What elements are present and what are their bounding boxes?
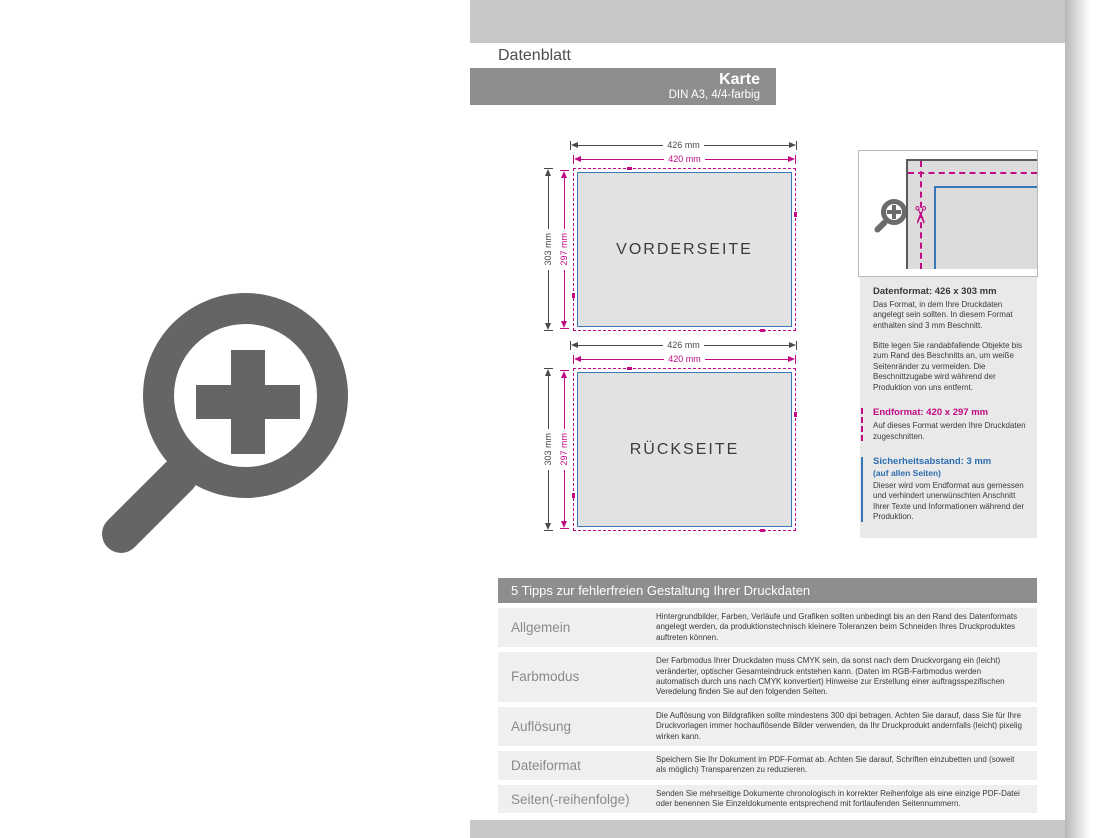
row-label: Dateiformat: [498, 758, 656, 773]
dim-line: [704, 145, 789, 146]
dim-arrow: [545, 523, 551, 530]
tips-header-bar: 5 Tipps zur fehlerfreien Gestaltung Ihre…: [498, 578, 1037, 603]
dim-arrow: [561, 521, 567, 528]
tips-table: Allgemein Hintergrundbilder, Farben, Ver…: [498, 608, 1037, 813]
row-text: Die Auflösung von Bildgrafiken sollte mi…: [656, 707, 1037, 746]
corner-illustration: ✂: [906, 159, 1037, 269]
row-text: Senden Sie mehrseitige Dokumente chronol…: [656, 785, 1037, 814]
product-header-bar: Karte DIN A3, 4/4-farbig: [470, 68, 776, 105]
dim-tick: [560, 328, 569, 329]
format-info-panel: Datenformat: 426 x 303 mm Das Format, in…: [860, 277, 1037, 538]
datenformat-text-1: Das Format, in dem Ihre Druckdaten angel…: [873, 300, 1029, 332]
crop-mark: [794, 212, 797, 217]
crop-mark: [760, 329, 765, 332]
crop-mark: [627, 167, 632, 170]
dim-line: [548, 376, 549, 429]
page-top-band: [470, 0, 1065, 43]
row-text: Hintergrundbilder, Farben, Verläufe und …: [656, 608, 1037, 647]
datenformat-section: Datenformat: 426 x 303 mm Das Format, in…: [873, 286, 1029, 393]
row-label: Allgemein: [498, 620, 656, 635]
back-label: RÜCKSEITE: [630, 441, 740, 459]
safety-margin-corner: [934, 186, 1037, 269]
datenformat-title: Datenformat: 426 x 303 mm: [873, 286, 1029, 298]
crop-mark: [794, 412, 797, 417]
back-height-bleed-label: 303 mm: [544, 429, 553, 470]
dim-line: [548, 270, 549, 323]
dim-line: [705, 159, 788, 160]
dim-tick: [560, 528, 569, 529]
dim-arrow: [571, 142, 578, 148]
sicherheitsabstand-title: Sicherheitsabstand: 3 mm: [873, 456, 1029, 468]
scissors-icon: ✂: [907, 205, 931, 225]
plus-vertical-bar: [231, 350, 265, 454]
page-bottom-band: [470, 820, 1065, 838]
front-height-final-label: 297 mm: [560, 229, 569, 270]
dim-tick: [795, 355, 796, 364]
sicherheitsabstand-subtitle: (auf allen Seiten): [873, 468, 1029, 479]
magnifier-handle: [873, 218, 889, 234]
back-width-final-label: 420 mm: [664, 355, 705, 364]
dim-arrow: [574, 356, 581, 362]
dim-arrow: [545, 369, 551, 376]
row-text: Speichern Sie Ihr Dokument im PDF-Format…: [656, 751, 1037, 780]
dim-line: [578, 145, 663, 146]
endformat-text: Auf dieses Format werden Ihre Druckdaten…: [873, 421, 1029, 442]
dim-line: [564, 378, 565, 429]
dim-line: [581, 159, 664, 160]
dim-line: [705, 359, 788, 360]
back-safe-area: RÜCKSEITE: [577, 372, 792, 527]
crop-mark: [572, 293, 575, 298]
dim-arrow: [789, 142, 796, 148]
dim-arrow: [561, 321, 567, 328]
crop-mark: [572, 493, 575, 498]
row-label: Seiten(-reihenfolge): [498, 792, 656, 807]
dim-arrow: [788, 156, 795, 162]
front-height-bleed-dimension: 303 mm: [543, 168, 553, 331]
row-label: Auflösung: [498, 719, 656, 734]
datasheet-page: Datenblatt Karte DIN A3, 4/4-farbig 426 …: [470, 0, 1065, 838]
table-row: Allgemein Hintergrundbilder, Farben, Ver…: [498, 608, 1037, 647]
dim-tick: [796, 141, 797, 150]
back-width-final-dimension: 420 mm: [573, 354, 796, 364]
front-width-final-label: 420 mm: [664, 155, 705, 164]
magnifier-handle: [94, 449, 206, 561]
row-label: Farbmodus: [498, 669, 656, 684]
table-row: Auflösung Die Auflösung von Bildgrafiken…: [498, 707, 1037, 746]
page-drop-shadow: [1065, 0, 1090, 838]
front-height-bleed-label: 303 mm: [544, 229, 553, 270]
cut-line-horizontal: [908, 172, 1037, 174]
dim-line: [564, 270, 565, 321]
dim-tick: [795, 155, 796, 164]
back-height-bleed-dimension: 303 mm: [543, 368, 553, 531]
table-row: Seiten(-reihenfolge) Senden Sie mehrseit…: [498, 785, 1037, 814]
dim-tick: [796, 341, 797, 350]
back-width-bleed-label: 426 mm: [663, 341, 704, 350]
dim-line: [564, 178, 565, 229]
datenblatt-label: Datenblatt: [498, 47, 571, 64]
dim-arrow: [789, 342, 796, 348]
back-height-final-dimension: 297 mm: [559, 370, 569, 529]
back-height-final-label: 297 mm: [560, 429, 569, 470]
endformat-title: Endformat: 420 x 297 mm: [873, 407, 1029, 419]
dim-line: [548, 176, 549, 229]
sicherheitsabstand-section: Sicherheitsabstand: 3 mm (auf allen Seit…: [873, 456, 1029, 523]
front-width-bleed-label: 426 mm: [663, 141, 704, 150]
dim-line: [704, 345, 789, 346]
dim-tick: [544, 330, 553, 331]
dim-arrow: [561, 371, 567, 378]
sicherheitsabstand-text: Dieser wird vom Endformat aus gemessen u…: [873, 481, 1029, 523]
front-label: VORDERSEITE: [616, 241, 753, 259]
table-row: Dateiformat Speichern Sie Ihr Dokument i…: [498, 751, 1037, 780]
product-subtitle: DIN A3, 4/4-farbig: [470, 89, 760, 102]
zoom-plus-icon: [0, 0, 470, 838]
front-height-final-dimension: 297 mm: [559, 170, 569, 329]
front-safe-area: VORDERSEITE: [577, 172, 792, 327]
datenformat-text-2: Bitte legen Sie randabfallende Objekte b…: [873, 341, 1029, 394]
dim-arrow: [571, 342, 578, 348]
front-width-final-dimension: 420 mm: [573, 154, 796, 164]
crop-mark: [760, 529, 765, 532]
back-card-diagram: RÜCKSEITE: [573, 368, 796, 531]
dim-arrow: [561, 171, 567, 178]
back-width-bleed-dimension: 426 mm: [570, 340, 797, 350]
dim-arrow: [788, 356, 795, 362]
dim-arrow: [574, 156, 581, 162]
endformat-section: Endformat: 420 x 297 mm Auf dieses Forma…: [873, 407, 1029, 442]
dim-line: [581, 359, 664, 360]
dim-arrow: [545, 323, 551, 330]
corner-detail-box: ✂: [858, 150, 1038, 277]
crop-mark: [627, 367, 632, 370]
tips-title: 5 Tipps zur fehlerfreien Gestaltung Ihre…: [511, 583, 810, 598]
dim-arrow: [545, 169, 551, 176]
table-row: Farbmodus Der Farbmodus Ihrer Druckdaten…: [498, 652, 1037, 702]
datenblatt-tab: Datenblatt: [490, 43, 593, 68]
dim-line: [548, 470, 549, 523]
row-text: Der Farbmodus Ihrer Druckdaten muss CMYK…: [656, 652, 1037, 702]
dim-tick: [544, 530, 553, 531]
plus-vertical-bar: [892, 205, 896, 219]
dim-line: [564, 470, 565, 521]
front-width-bleed-dimension: 426 mm: [570, 140, 797, 150]
front-card-diagram: VORDERSEITE: [573, 168, 796, 331]
dim-line: [578, 345, 663, 346]
product-title: Karte: [470, 71, 760, 89]
